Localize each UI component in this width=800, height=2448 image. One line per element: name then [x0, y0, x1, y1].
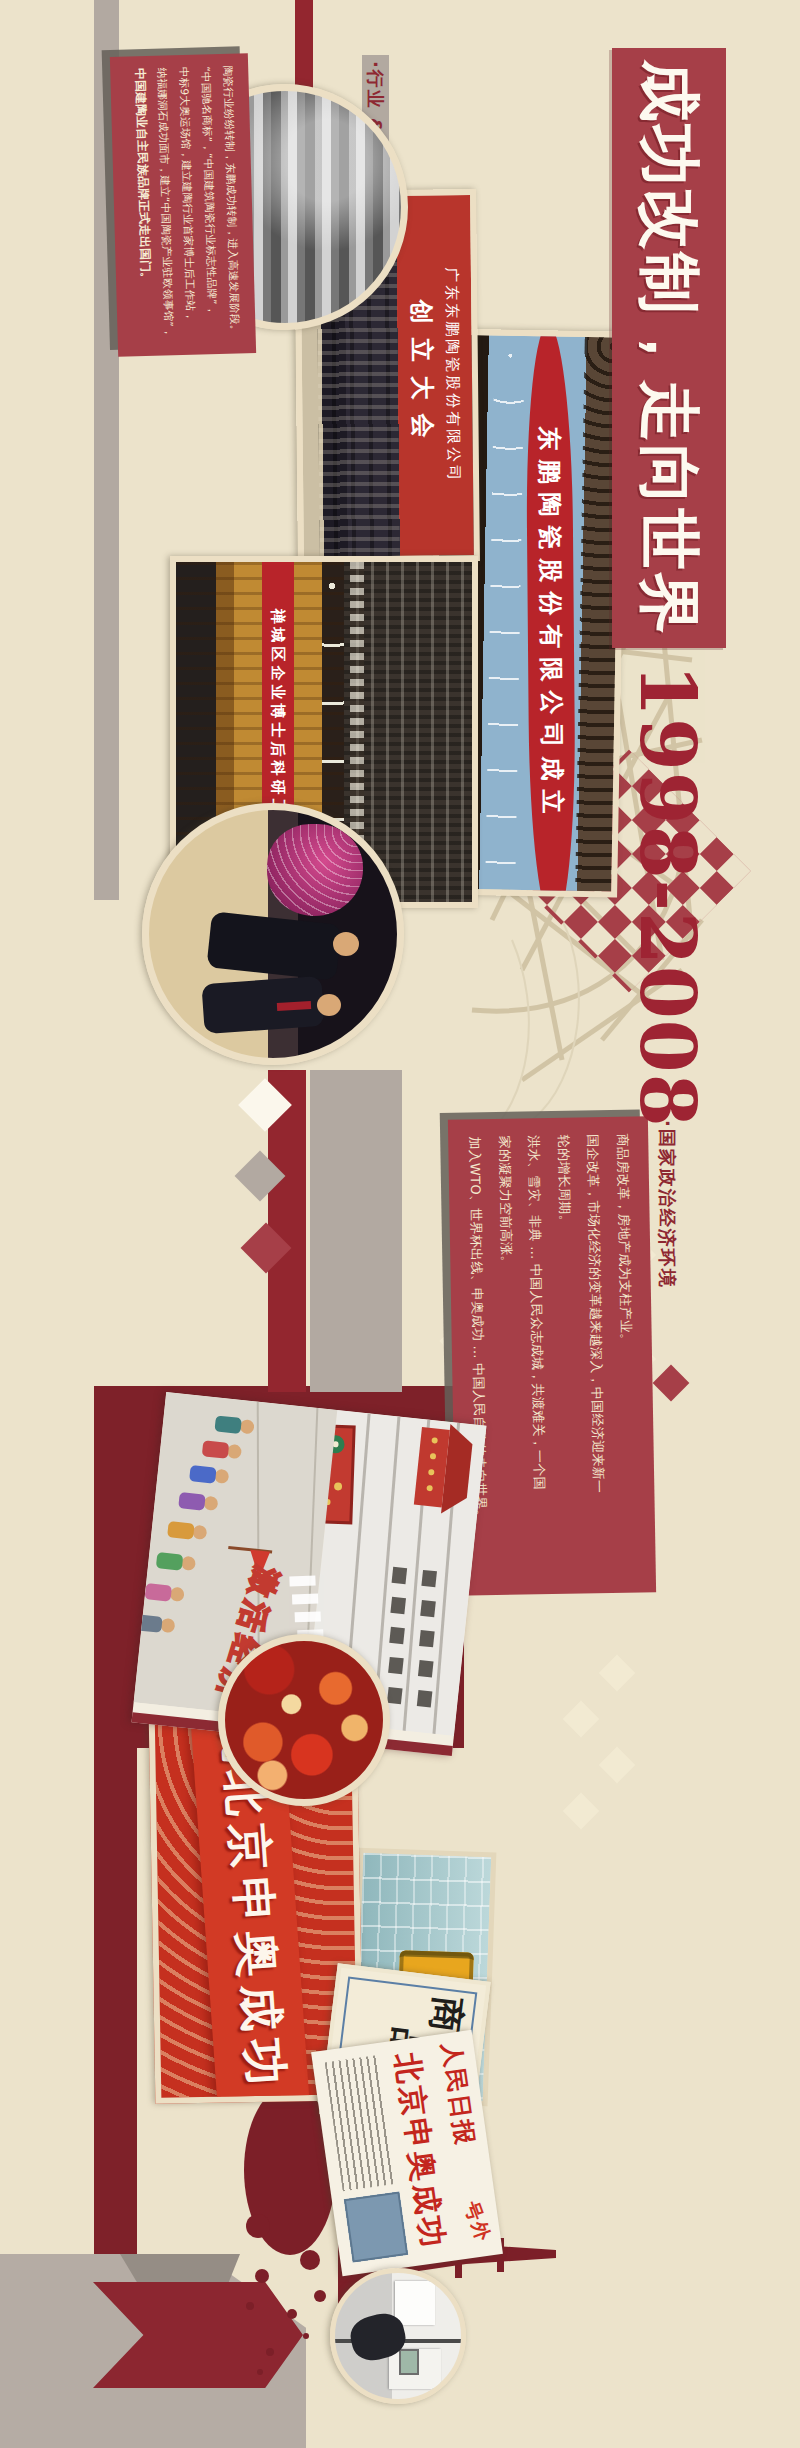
greeting-visit-photo — [142, 803, 404, 1065]
gray-bar — [310, 1070, 402, 1392]
office-monitor — [401, 2351, 417, 2373]
office-interior-photo — [330, 2268, 466, 2404]
industry-text-box: 陶瓷行业纷纷转制，东鹏成功转制，进入高速发展阶段。 “中国驰名商标”，“中国建筑… — [110, 53, 256, 357]
newspaper-columns-texture — [325, 2055, 397, 2191]
founding-banner-company: 广东东鹏陶瓷股份有限公司 — [441, 195, 464, 555]
ceremony-banner-text: 东鹏陶瓷股份有限公司成立 — [533, 426, 568, 822]
ceremony-arc-banner: 东鹏陶瓷股份有限公司成立 — [525, 328, 576, 897]
title-years: 1998-2008 — [623, 664, 712, 1128]
face — [317, 994, 341, 1016]
ceremony-stage-lights — [485, 335, 525, 889]
office-desk — [395, 2281, 435, 2325]
newspaper-photo — [344, 2191, 408, 2262]
hotword-char: 商 — [419, 1994, 472, 2036]
diamond — [563, 1793, 600, 1830]
poster-canvas: 成功改制，走向世界 1998-2008 ·行业 & 东鹏发展 陶瓷行业纷纷转制，… — [0, 0, 800, 2448]
suit-figure — [206, 911, 341, 980]
newspaper-masthead: 人民日报 — [435, 2041, 481, 2148]
sequin-jacket-figure — [267, 824, 363, 916]
newspaper-clipping: 人民日报 号外 北京申奥成功 — [311, 2030, 503, 2276]
title-banner: 成功改制，走向世界 — [612, 48, 726, 648]
national-text-box: 商品房改革，房地产成为支柱产业。 国企改革，市场化经济的变革越来越深入，中国经济… — [448, 1116, 656, 1595]
celebration-crowd-photo — [218, 1634, 390, 1806]
diamond — [599, 1655, 636, 1692]
poster-title: 成功改制，走向世界 — [627, 60, 711, 636]
face — [333, 932, 359, 956]
diamond — [653, 1365, 690, 1402]
diamond — [563, 1701, 600, 1738]
national-heading: ·国家政治经济环境 — [655, 1120, 679, 1289]
poster-viewport: 成功改制，走向世界 1998-2008 ·行业 & 东鹏发展 陶瓷行业纷纷转制，… — [0, 0, 800, 2448]
diamond — [599, 1747, 636, 1784]
founding-banner-event: 创立大会 — [404, 195, 440, 555]
newspaper-extra-stamp: 号外 — [458, 2198, 497, 2246]
